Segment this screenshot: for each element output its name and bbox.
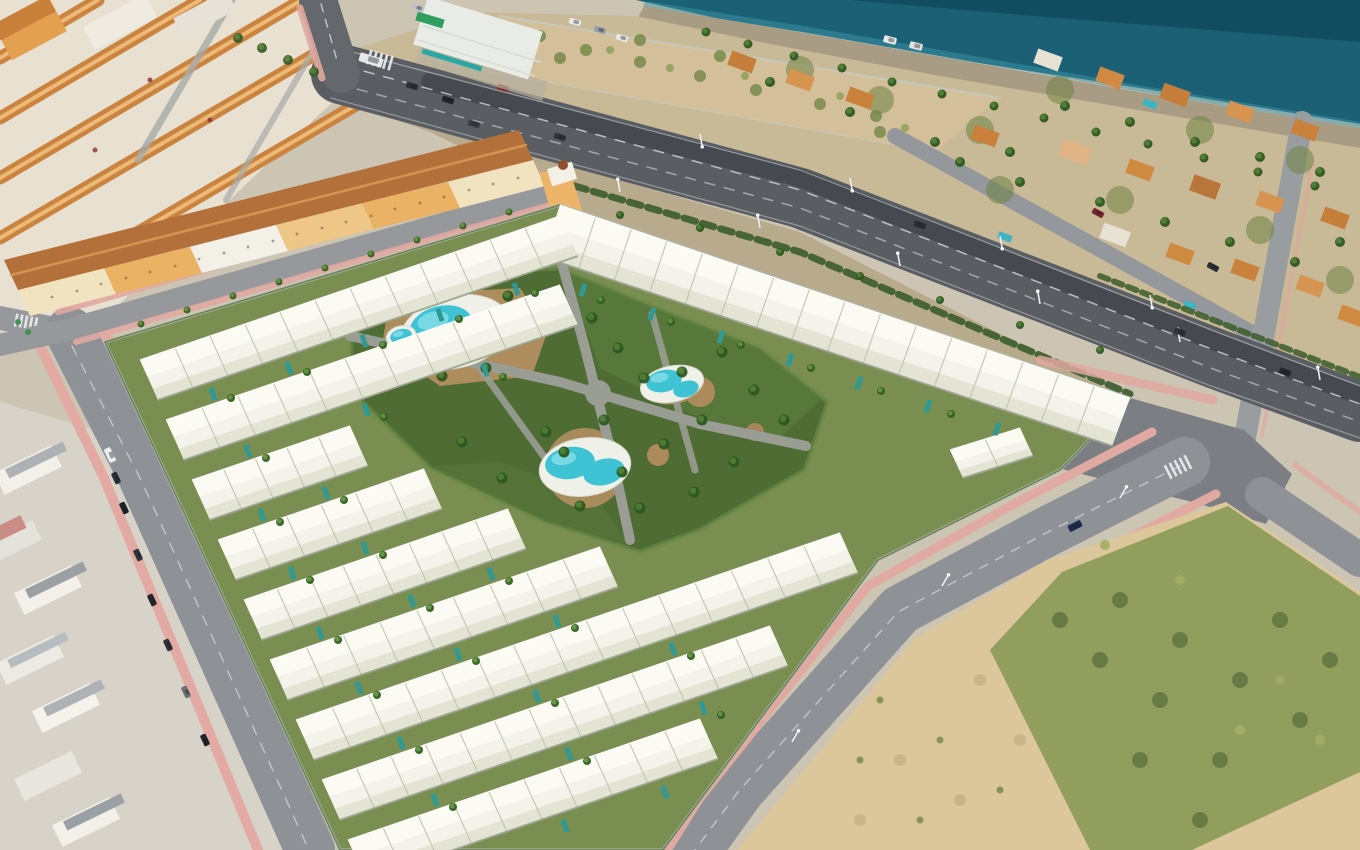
aerial-scene [0,0,1360,850]
tower-pyramid-roof [558,160,568,170]
aerial-screenshot: Aerial render of new coastal townhouse d… [0,0,1360,850]
top-road [318,0,341,74]
park-plaza [585,380,611,406]
